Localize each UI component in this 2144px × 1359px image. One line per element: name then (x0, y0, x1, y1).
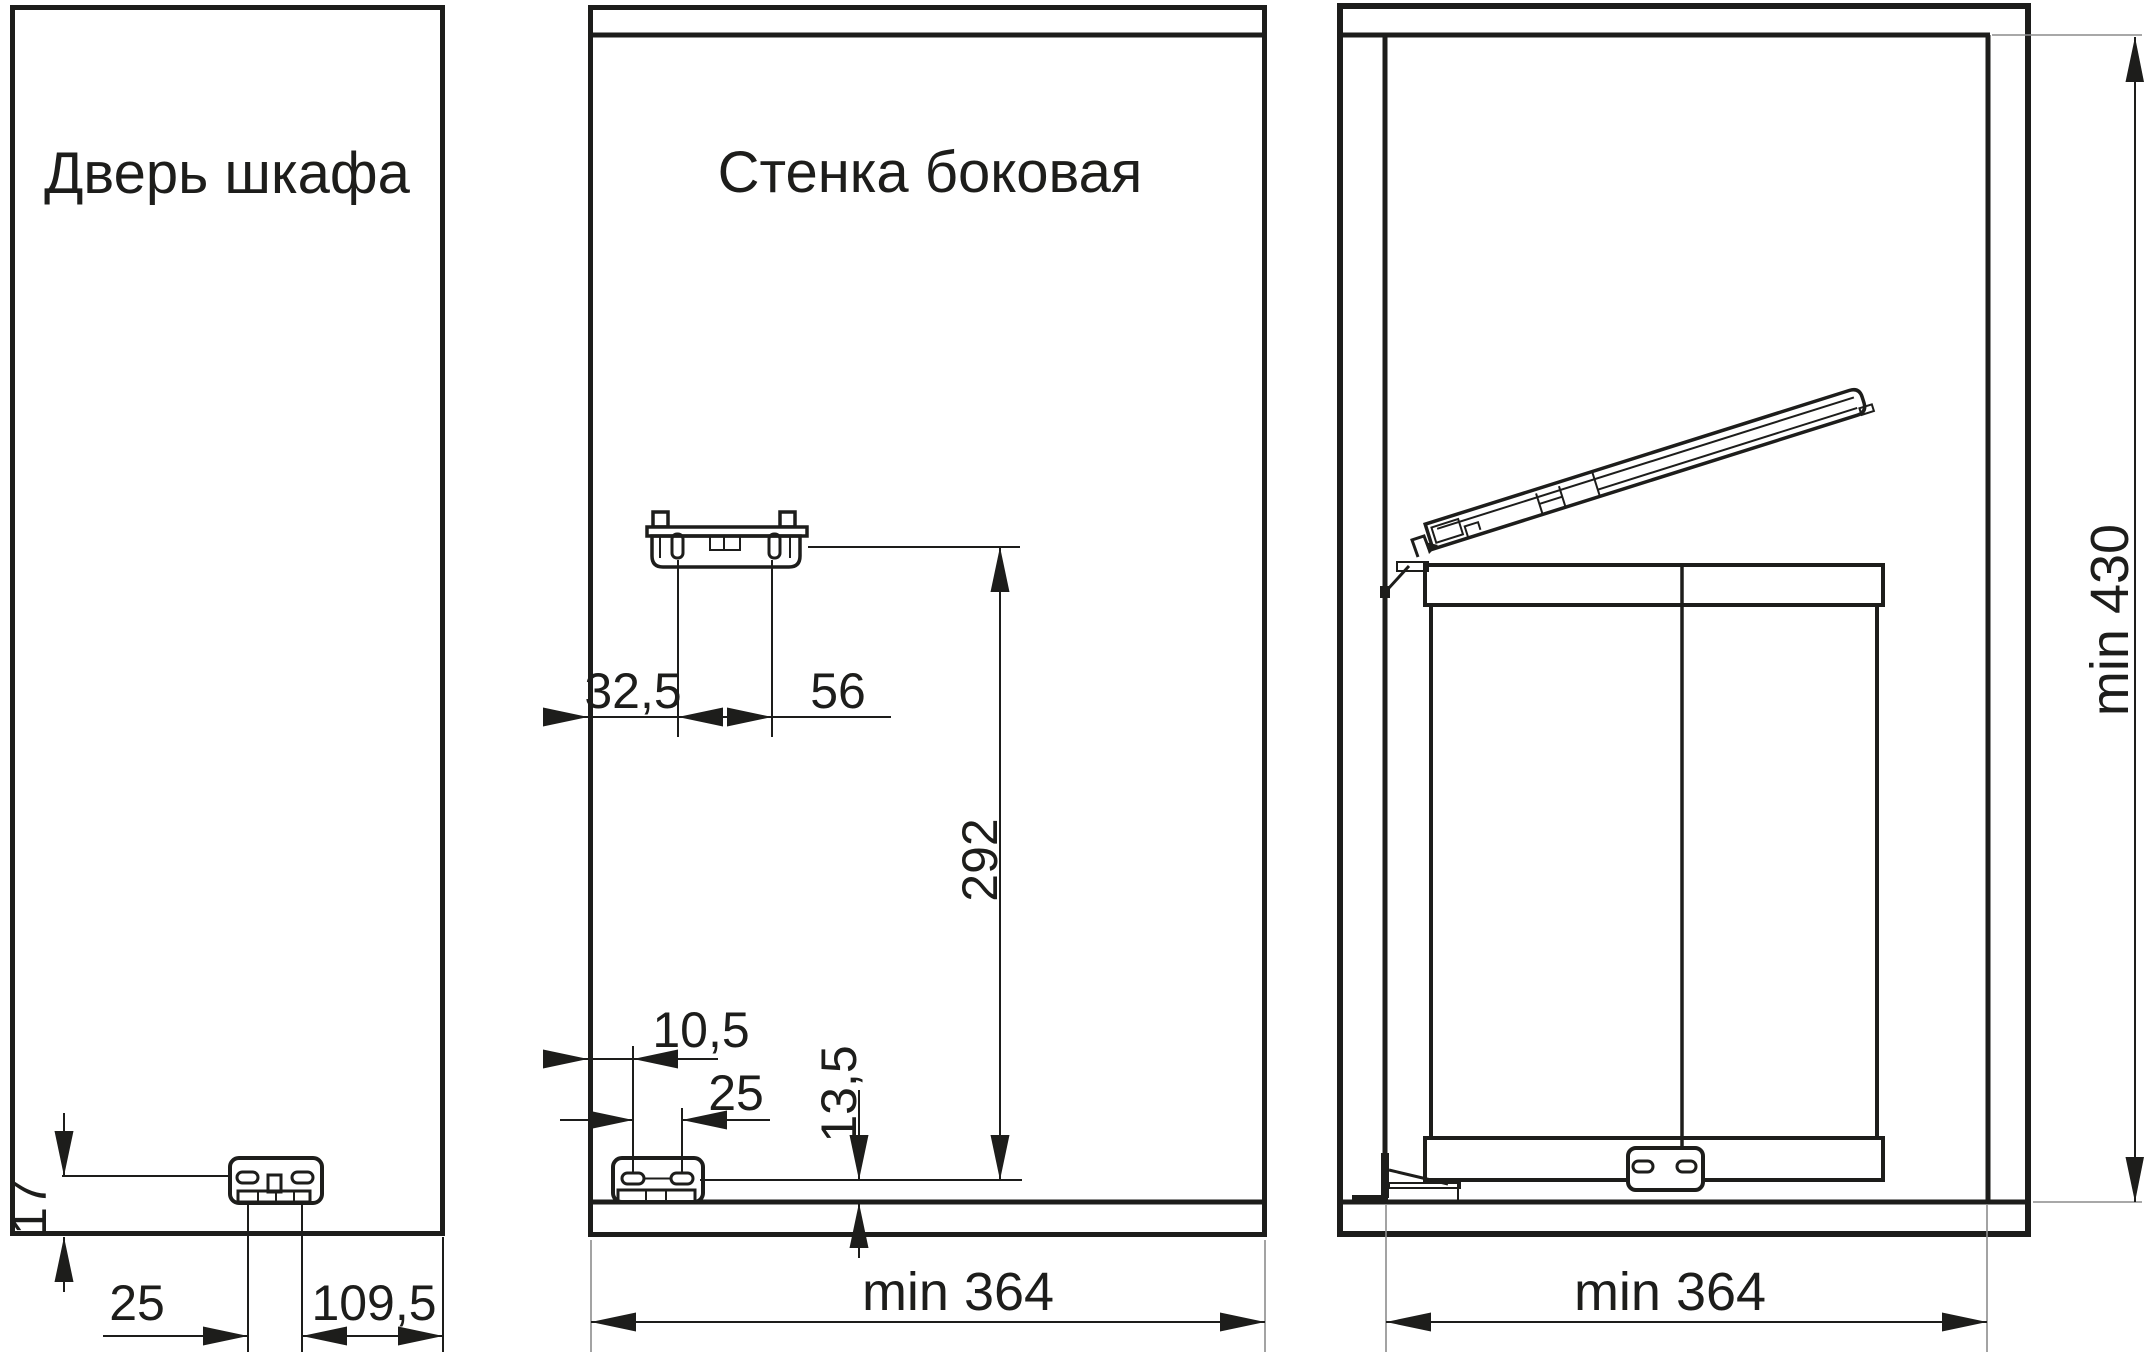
bin-mounting-plate (1628, 1148, 1703, 1190)
dim-min430-arrow-down (2126, 1157, 2144, 1202)
dim-min364-side: min 364 (591, 1240, 1265, 1352)
dim-min364-side-arrow-right (1220, 1313, 1265, 1332)
lid-slab (1425, 387, 1867, 549)
dim-292: 292 (952, 547, 1010, 1180)
side-wall-title: Стенка боковая (718, 140, 1143, 205)
lever-foot (1352, 1195, 1388, 1201)
bin-rim (1425, 565, 1883, 605)
dim-32-arrow-right (678, 708, 723, 727)
dim-min364-front-arrow-left (1386, 1313, 1431, 1332)
side-wall-panel: Стенка боковая 32,5 56 (543, 8, 1265, 1353)
lid-hinge-detail (1431, 519, 1463, 543)
dim-min364-front: min 364 (1386, 1205, 1987, 1352)
dim-min430-arrow-up (2126, 37, 2144, 82)
dim-135-arrow-up (850, 1203, 869, 1248)
dim-292-arrow-down (991, 1135, 1010, 1180)
bin-lid-open (1425, 385, 1874, 550)
technical-drawing-page: Дверь шкафа 17 (0, 0, 2144, 1359)
lid-front-lip (1859, 404, 1874, 415)
dim-32-arrow-left (543, 708, 588, 727)
dim-56-label: 56 (810, 663, 866, 719)
lid-top-surface-line (1437, 397, 1854, 528)
bin-body-sides (1431, 605, 1877, 1138)
dim-56-arrow-right (727, 708, 772, 727)
hinge-hook (1412, 536, 1429, 557)
lid-lower-surface-line (1598, 408, 1857, 490)
dim-105-label: 10,5 (652, 1002, 749, 1058)
cabinet-panel: min 364 min 430 (1340, 6, 2144, 1352)
door-bracket (230, 1158, 322, 1203)
door-title: Дверь шкафа (44, 141, 410, 206)
dim-min364-front-label: min 364 (1574, 1262, 1766, 1322)
dim-25b-label: 25 (708, 1065, 764, 1121)
lever-vertical-bar (1381, 1153, 1389, 1198)
bin-mounting-diagram: Дверь шкафа 17 (0, 0, 2144, 1359)
dim-17-arrow-up (55, 1237, 74, 1282)
door-panel: Дверь шкафа 17 (1, 8, 443, 1353)
dim-292-arrow-up (991, 547, 1010, 592)
dim-105-arrow-left (543, 1050, 588, 1069)
lower-bracket-body (613, 1158, 703, 1202)
hinge-wall-pad (1380, 586, 1390, 598)
cabinet-outline (1340, 6, 2028, 1234)
dim-32-label: 32,5 (584, 663, 681, 719)
dim-25b-arrow-left (588, 1111, 633, 1130)
waste-bin (1425, 565, 1883, 1190)
lid-section-divider (1592, 472, 1600, 497)
dim-25-arrow (203, 1327, 248, 1346)
dim-min364-front-arrow-right (1942, 1313, 1987, 1332)
dim-min364-side-arrow-left (591, 1313, 636, 1332)
side-wall-upper-bracket (647, 512, 807, 567)
dim-17: 17 (1, 1113, 232, 1292)
lever-horizontal-arm (1389, 1183, 1460, 1188)
dim-109-label: 109,5 (311, 1275, 436, 1331)
dim-min430-label: min 430 (2080, 524, 2140, 716)
dim-135-label: 13,5 (811, 1045, 867, 1142)
dim-17-arrow-down (55, 1131, 74, 1176)
dim-min364-side-label: min 364 (862, 1262, 1054, 1322)
upper-bracket-tab-left (653, 512, 668, 527)
dim-25-109: 25 109,5 (103, 1205, 443, 1352)
upper-bracket-body (652, 536, 800, 567)
dim-292-label: 292 (952, 818, 1008, 901)
bottom-lever-mechanism (1352, 1153, 1460, 1201)
side-wall-lower-bracket (613, 1158, 703, 1202)
upper-bracket-tab-right (780, 512, 795, 527)
dim-105-25: 10,5 25 (543, 1002, 770, 1174)
hinge-strut (1388, 566, 1409, 589)
dim-32-56: 32,5 56 (543, 560, 891, 737)
lever-diagonal (1389, 1170, 1448, 1184)
dim-25-label: 25 (109, 1275, 165, 1331)
dim-135: 13,5 (811, 1045, 869, 1258)
dim-min430: min 430 (1992, 35, 2144, 1202)
dim-17-label: 17 (1, 1179, 57, 1235)
